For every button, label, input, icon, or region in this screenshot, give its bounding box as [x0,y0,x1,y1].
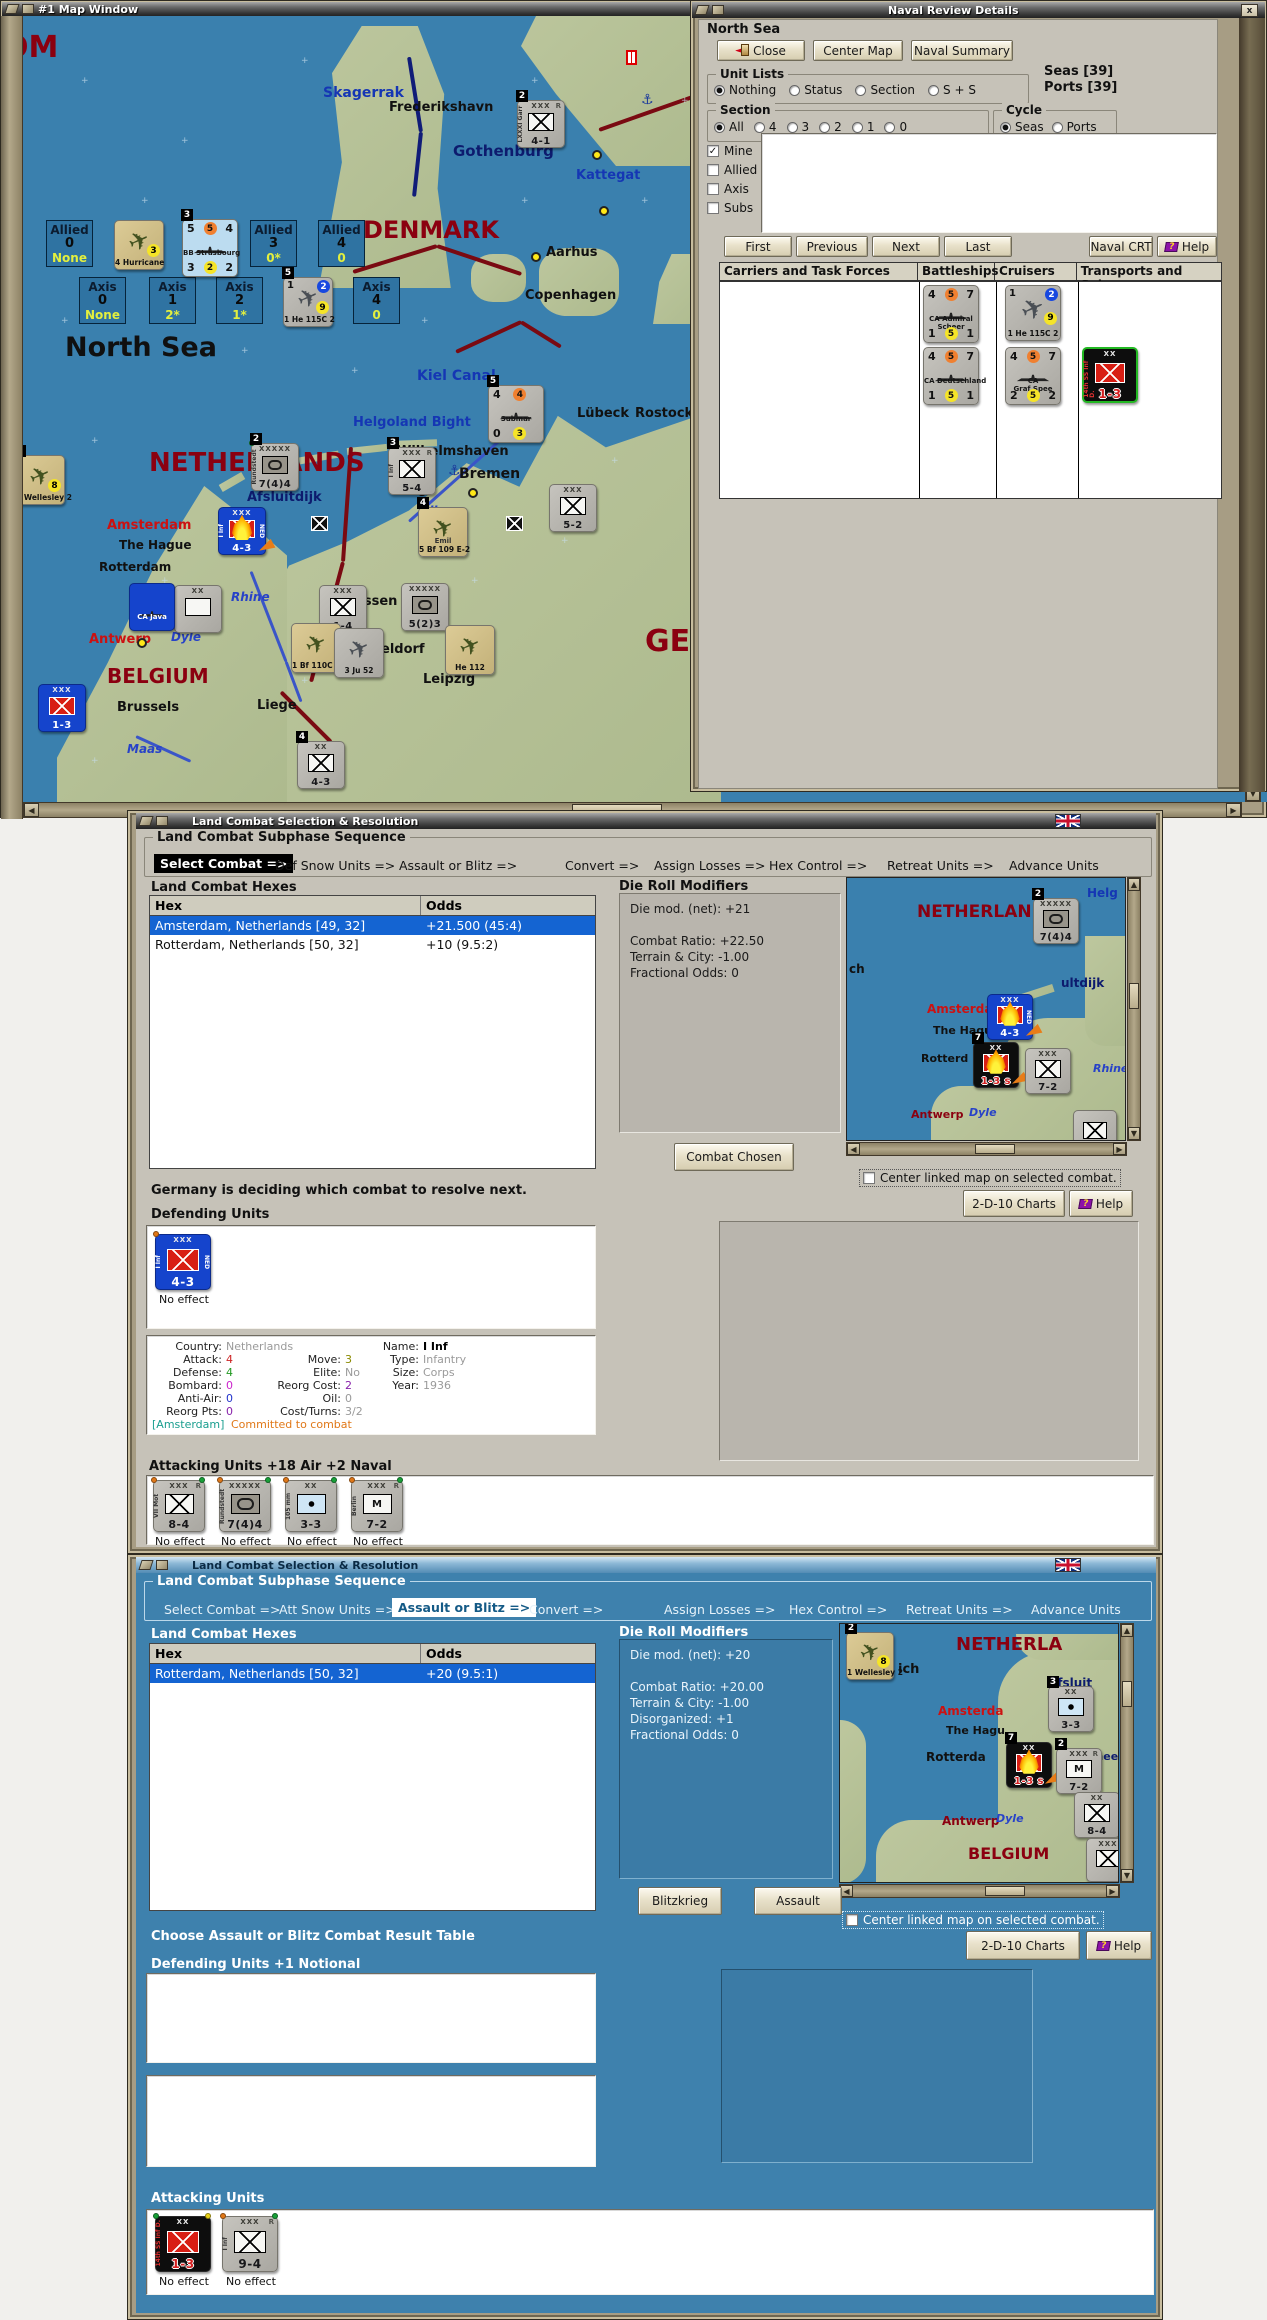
center-map-button[interactable]: Center Map [813,40,903,61]
previous-button[interactable]: Previous [796,236,868,257]
unit-lists-option[interactable]: S + S [928,83,976,97]
unit-counter[interactable]: XXXNED4-3 [987,994,1033,1040]
checkbox-label: Axis [724,182,749,196]
naval-crt-button[interactable]: Naval CRT [1089,236,1153,257]
map-label: Amsterda [938,1704,1003,1718]
air-unit-counter[interactable]: ✈Emil5 Bf 109 E-24 [418,507,468,557]
checkbox-label: Center linked map on selected combat. [880,1171,1117,1185]
unit-counter[interactable]: XX105 mm3-3 [285,1480,337,1532]
hex-cell: Rotterdam, Netherlands [50, 32] [150,1664,421,1683]
window-pin-icon[interactable] [22,4,34,14]
map-left-bezel [1,16,23,819]
linked-minimap[interactable]: HelgNETHERLANDSultdijkAmsterdaThe HaguRo… [846,877,1126,1141]
close-window-icon[interactable]: x [1241,4,1258,17]
naval-rating: 7 [1048,350,1056,363]
stack-number: 2 [235,294,244,308]
map-label: BELGIUM [107,664,209,688]
map-label: Antwerp [942,1814,999,1828]
map-label: Rotterdam [99,560,171,574]
unit-counter[interactable]: XX [174,585,222,633]
naval-rating: 5 [187,222,195,235]
column-header: Transports and Subs [1077,263,1221,280]
checkbox-icon[interactable] [707,202,719,214]
map-label: Liege [257,698,297,713]
naval-rating: 1 [928,389,936,402]
naval-rating-circle: 5 [945,389,958,402]
checkbox-icon[interactable] [846,1914,858,1926]
sea-sparkle: + [561,536,569,546]
blitzkrieg-button[interactable]: Blitzkrieg [638,1887,722,1915]
stack-count-badge: 5 [487,375,499,387]
help-button[interactable]: ? Help [1069,1190,1133,1217]
stack-info-box[interactable]: Axis0None [79,277,126,324]
detail-value: Corps [423,1366,455,1379]
detail-label: Elite: [267,1366,341,1379]
land-area [1085,936,1126,1046]
unit-size-label: XXX [320,587,366,595]
phase-step-3: Assault or Blitz => [392,1598,536,1617]
stack-count-badge: 4 [417,497,429,509]
radio-icon[interactable] [787,122,798,133]
detail-label: Move: [267,1353,341,1366]
detail-label: Cost/Turns: [267,1405,341,1418]
result-panel [719,1221,1139,1461]
scroll-thumb[interactable] [975,1144,1015,1154]
hex-cell: +21.500 (45:4) [421,916,589,935]
cycle-option[interactable]: Ports [1052,120,1097,134]
map-label: ch [849,962,865,976]
air-unit-counter[interactable]: ✈81 Wellesley 22 [846,1632,894,1680]
air-unit-counter[interactable]: 12✈91 He 115C 2 [1005,285,1061,341]
defending-units-box-2[interactable] [146,2075,596,2167]
radio-icon[interactable] [884,122,895,133]
unit-symbol-inf [330,598,357,616]
stack-number: 4 [337,237,346,251]
phase-step-7: Retreat Units => [887,858,994,873]
section-label: Section [716,103,775,117]
stack-info-box[interactable]: Allied30* [250,220,297,267]
unit-counter[interactable]: XXXRVII Mot8-4 [153,1480,205,1532]
unit-strength: 7(4)4 [252,479,298,490]
help-book-icon: ? [1164,242,1179,252]
unit-strength: 4-1 [518,136,564,147]
column-header: Odds [421,1644,589,1663]
modifier-line: Disorganized: +1 [630,1712,734,1726]
stack-value: 2* [165,308,180,322]
linked-minimap[interactable]: NETHERLAichAfsluitAmsterdaThe HaguRotter… [839,1623,1119,1883]
unit-counter[interactable]: XX14th SS Inf D.1-3 [155,2216,211,2272]
radio-label: 3 [802,120,810,134]
center-map-checkbox-row[interactable]: Center linked map on selected combat. [842,1911,1104,1929]
center-map-checkbox-row[interactable]: Center linked map on selected combat. [859,1169,1121,1187]
radio-icon[interactable] [852,122,863,133]
last-button[interactable]: Last [944,236,1012,257]
help-book-icon: ? [1096,1941,1111,1951]
map-label: DENMARK [363,216,499,244]
map-label: Antwerp [911,1108,964,1121]
result-panel [721,1969,1033,2163]
help-button[interactable]: ? Help [1086,1931,1152,1960]
window-menu-icon[interactable] [4,4,19,14]
sea-sparkle: + [81,76,89,86]
map-label: Rhine [1093,1062,1126,1075]
unit-strength: 3-3 [1049,1720,1093,1731]
hexes-label: Land Combat Hexes [151,880,297,895]
unit-counter[interactable]: XXXRI Inf5-43 [388,447,436,495]
section-option[interactable]: 4 [754,120,777,134]
air-unit-counter[interactable]: ✈3 Ju 52 [334,628,384,678]
stack-info-box[interactable]: Axis40 [353,277,400,324]
phase-sequence: Select Combat =>Att Snow Units =>Assault… [144,1581,1152,1621]
unit-symbol-hq [412,596,439,614]
unit-symbol-m: M [363,1494,392,1514]
checkbox-icon[interactable]: ✓ [707,145,719,157]
radio-label: 0 [899,120,907,134]
assault-button[interactable]: Assault [754,1887,842,1915]
modifier-line: Die mod. (net): +21 [630,902,750,916]
unit-size-label: XXXXX [220,1482,270,1490]
phase-step-5: Assign Losses => [654,858,765,873]
unit-counter[interactable]: XXXXX5(2)3 [401,583,449,631]
unit-counter[interactable]: XXXI InfNED4-3 [218,507,266,555]
phase-step-3: Assault or Blitz => [399,858,517,873]
defending-units-box[interactable]: XXXI InfNED4-3No effect [146,1225,596,1329]
unit-symbol-inf [1095,363,1125,384]
radio-label: 4 [769,120,777,134]
scroll-right-arrow[interactable]: ▶ [1113,1143,1126,1155]
sea-sparkle: + [61,316,69,326]
combat-hexes-table[interactable]: HexOddsAmsterdam, Netherlands [49, 32]+2… [149,895,596,1169]
stack-info-box[interactable]: Allied0None [46,220,93,267]
hex-cell: +10 (9.5:2) [421,935,589,954]
status-dot [265,1477,271,1483]
hex-combat-row[interactable]: Rotterdam, Netherlands [50, 32]+20 (9.5:… [150,1664,595,1683]
status-dot [220,2213,226,2219]
minimap-vertical-scrollbar[interactable]: ▲ ▼ [1120,1623,1134,1883]
reserve-flag: R [1093,1750,1098,1758]
radio-label: Section [870,83,915,97]
unit-size-label: XX [298,743,344,751]
unit-counter[interactable]: XXXXXRundstedt7(4)42 [251,443,299,491]
next-button[interactable]: Next [872,236,940,257]
map-label: Frederikshavn [389,100,493,115]
combat2-titlebar[interactable]: Land Combat Selection & Resolution [136,1557,1156,1573]
column-divider [919,282,920,498]
naval-list-box[interactable] [761,133,1217,233]
uk-flag-icon [1055,1558,1081,1572]
first-button[interactable]: First [724,236,792,257]
cycle-options: SeasPorts [1000,120,1097,134]
unit-effect-label: No effect [149,1293,219,1306]
detail-label: Attack: [152,1353,222,1366]
unit-counter[interactable]: XX1-3 s7 [1006,1742,1052,1788]
air-rating-badge: 9 [1044,312,1057,325]
attacking-units-box[interactable]: XX14th SS Inf D.1-3No effectXXXRI Inf9-4… [146,2209,1154,2295]
unit-size-label: XXX [156,1236,210,1244]
stack-number: 1 [168,294,177,308]
naval-unit-counter[interactable]: 457CAGraf Spee252 [1005,347,1061,405]
detail-value: Netherlands [226,1340,293,1353]
defending-units-label: Defending Units +1 Notional [151,1957,360,1972]
map-label: Aarhus [546,245,598,260]
hex-combat-row[interactable]: Rotterdam, Netherlands [50, 32]+10 (9.5:… [150,935,595,954]
scroll-thumb[interactable] [985,1886,1025,1896]
naval-window-titlebar[interactable]: Naval Review Details [692,2,1265,18]
choose-crt-label: Choose Assault or Blitz Combat Result Ta… [151,1929,475,1944]
filter-option[interactable]: Allied [707,163,757,177]
map-label: The Hague [119,538,191,552]
radio-icon[interactable] [819,122,830,133]
status-dot [331,1477,337,1483]
unit-effect-label: No effect [345,1535,411,1548]
radio-icon[interactable] [928,85,939,96]
map-label: Lübeck [577,406,629,421]
unit-strength: 1-3 [1084,387,1136,401]
naval-unit-counter[interactable]: CA Java [129,583,175,631]
stack-info-box[interactable]: Axis12* [149,277,196,324]
section-option[interactable]: 2 [819,120,842,134]
reserve-flag: R [394,1482,399,1490]
naval-rating: 7 [966,288,974,301]
naval-unit-counter[interactable]: 44Submar035 [488,385,544,443]
scroll-up-arrow[interactable]: ▲ [1128,878,1140,891]
radio-label: 2 [834,120,842,134]
naval-rating: 4 [493,388,501,401]
combat1-titlebar[interactable]: Land Combat Selection & Resolution [136,813,1156,829]
scroll-right-arrow[interactable]: ▶ [1106,1885,1119,1897]
naval-rating: 2 [225,261,233,274]
unit-counter[interactable]: XX1-3 s7 [973,1042,1019,1088]
reserve-flag: R [196,1482,201,1490]
checkbox-icon[interactable] [707,164,719,176]
section-option[interactable]: 0 [884,120,907,134]
radio-icon[interactable] [855,85,866,96]
air-unit-counter[interactable]: 12✈91 He 115C 25 [283,277,333,327]
air-unit-label: He 112 [446,663,494,672]
checkbox-label: Allied [724,163,757,177]
unit-strength: 8-4 [1075,1826,1119,1837]
naval-help-button[interactable]: ? Help [1157,236,1217,257]
unit-size-label: XXX [39,686,85,694]
stack-info-box[interactable]: Allied40 [318,220,365,267]
map-label: Afsluitdijk [247,490,322,505]
cycle-option[interactable]: Seas [1000,120,1044,134]
air-unit-counter[interactable]: ✈34 Hurricane [114,220,164,270]
detail-value: 0 [226,1405,233,1418]
unit-symbol-inf [1083,1122,1107,1139]
sea-sparkle: + [351,366,359,376]
uk-flag-icon [1055,814,1081,828]
stack-value: 0* [266,251,281,265]
charts-button[interactable]: 2-D-10 Charts [966,1931,1080,1960]
attacking-units-box[interactable]: XXXRVII Mot8-4No effectXXXXXRundstedt7(4… [146,1475,1154,1545]
modifier-line: Combat Ratio: +22.50 [630,934,764,948]
detail-value: 0 [226,1379,233,1392]
naval-unit-counter[interactable]: 457CA Deutschland151 [923,347,979,405]
radio-icon[interactable] [789,85,800,96]
naval-rating-circle: 4 [513,388,526,401]
stack-info-box[interactable]: Axis21* [216,277,263,324]
naval-ratings-bottom: 252 [1010,389,1056,402]
detail-label: Name: [373,1340,419,1353]
scroll-thumb[interactable] [1122,1681,1132,1707]
minimap-horizontal-scrollbar[interactable]: ◀ ▶ [846,1142,1127,1156]
side-filters: ✓MineAlliedAxisSubs [707,144,757,215]
unit-counter[interactable]: XX14th SS Inf D.1-3 [1082,347,1138,403]
sea-sparkle: + [301,676,309,686]
filter-option[interactable]: ✓Mine [707,144,757,158]
unit-counter[interactable]: XXX5-2 [549,484,597,532]
door-exit-icon: ◄ [736,44,749,57]
combat-hexes-table[interactable]: HexOddsRotterdam, Netherlands [50, 32]+2… [149,1643,596,1911]
air-unit-label: 5 Bf 109 E-2 [419,545,467,554]
window-menu-icon[interactable] [138,816,153,826]
radio-icon[interactable] [714,85,725,96]
naval-unit-counter[interactable]: 457CA AdmiralScheer151 [923,285,979,343]
unit-size-label: XX [156,2218,210,2226]
map-label: ultdijk [1061,976,1104,990]
checkbox-icon[interactable] [863,1172,875,1184]
unit-counter[interactable]: XXXRM7-22 [1056,1748,1102,1794]
naval-table-body[interactable]: 457CA AdmiralScheer151457CA Deutschland1… [719,281,1222,499]
radio-icon[interactable] [714,122,725,133]
detail-value: No [345,1366,360,1379]
port-marker[interactable] [531,252,541,262]
scroll-down-arrow[interactable]: ▼ [1121,1869,1133,1882]
unit-strength: 9-4 [223,2257,277,2271]
unit-size-label: XX [175,587,221,595]
modifier-line: Fractional Odds: 0 [630,966,739,980]
scroll-thumb[interactable] [1129,983,1139,1009]
section-option[interactable]: 3 [787,120,810,134]
port-marker[interactable] [468,488,478,498]
section-option[interactable]: 1 [852,120,875,134]
unit-counter[interactable]: XXX1-3 [38,684,86,732]
land-combat-window-2: Land Combat Selection & Resolution Land … [127,1554,1163,2320]
unit-counter[interactable]: XXX7-2 [1025,1048,1071,1094]
unit-lists-option[interactable]: Section [855,83,915,97]
unit-counter[interactable]: XXXRI Inf9-4 [222,2216,278,2272]
modifier-line: Combat Ratio: +20.00 [630,1680,764,1694]
column-header: Odds [421,896,589,915]
unit-counter[interactable]: XX8-4 [1074,1792,1119,1838]
stack-number: 0 [98,294,107,308]
minimap-horizontal-scrollbar[interactable]: ◀ ▶ [839,1884,1120,1898]
naval-rating-circle: 5 [204,222,217,235]
sea-sparkle: + [681,96,689,106]
unit-counter[interactable]: XX3-33 [1048,1686,1094,1732]
sea-name: North Sea [707,22,780,37]
port-marker[interactable] [137,638,147,648]
air-rating-badge: 8 [48,479,61,492]
radio-label: All [729,120,744,134]
scroll-left-arrow[interactable]: ◀ [847,1143,860,1155]
phase-step-8: Advance Units [1009,858,1099,873]
naval-summary-button[interactable]: Naval Summary [911,40,1013,61]
stack-count-badge: 2 [845,1623,857,1634]
section-option[interactable]: All [714,120,744,134]
stack-value: 0 [372,308,380,322]
scroll-left-arrow[interactable]: ◀ [24,803,39,817]
unit-lists-option[interactable]: Status [789,83,842,97]
unit-counter[interactable]: XXXI InfNED4-3 [155,1234,211,1290]
detail-value: 3 [345,1353,352,1366]
scroll-right-arrow[interactable]: ▶ [1226,803,1241,817]
status-dot [199,1477,205,1483]
radio-label: Ports [1067,120,1097,134]
window-menu-icon[interactable] [138,1560,153,1570]
unit-counter[interactable]: XXX [1086,1838,1119,1882]
checkbox-icon[interactable] [707,183,719,195]
combat2-content: Land Combat Subphase Sequence Select Com… [136,1573,1156,2313]
charts-button[interactable]: 2-D-10 Charts [963,1190,1065,1217]
map-label: BELGIUM [968,1844,1049,1863]
unit-counter[interactable]: XXXXX7(4)42 [1033,898,1079,944]
unit-strength: 5-4 [389,483,435,494]
unit-counter[interactable]: XX4-34 [297,741,345,789]
unit-lists-option[interactable]: Nothing [714,83,776,97]
map-label: Rostock [635,406,693,421]
defending-units-box[interactable] [146,1973,596,2063]
stack-side: Axis [88,280,116,294]
map-label: Amsterdam [107,518,191,533]
minimap-vertical-scrollbar[interactable]: ▲ ▼ [1127,877,1141,1141]
filter-option[interactable]: Subs [707,201,757,215]
scroll-up-arrow[interactable]: ▲ [1121,1624,1133,1637]
port-marker[interactable] [592,150,602,160]
map-label: Copenhagen [525,288,616,303]
air-unit-label: 1 He 115C 2 [284,315,332,324]
window-menu-icon[interactable] [694,5,709,15]
window-pin-icon[interactable] [712,5,724,15]
naval-unit-counter[interactable]: 554BB Strasbourg3223 [182,219,238,277]
unit-counter[interactable]: XXXRLXXXI Garr4-12 [517,100,565,148]
unit-counter[interactable]: XXXRBerlinM7-2 [351,1480,403,1532]
phase-step-8: Advance Units [1031,1602,1121,1617]
detail-label: Defense: [152,1366,222,1379]
phase-step-1: Select Combat => [164,1602,281,1617]
radio-icon[interactable] [1052,122,1063,133]
stack-count-badge: 3 [387,437,399,449]
stack-count-badge: 2 [516,90,528,102]
stack-value: None [85,308,120,322]
unit-symbol-hq [231,1494,260,1514]
filter-option[interactable]: Axis [707,182,757,196]
naval-rating: 1 [966,389,974,402]
status-dot [151,1477,157,1483]
window-pin-icon[interactable] [156,816,168,826]
radio-icon[interactable] [754,122,765,133]
window-pin-icon[interactable] [156,1560,168,1570]
sea-sparkle: + [301,56,309,66]
unit-counter[interactable] [1073,1110,1117,1141]
air-unit-counter[interactable]: ✈He 112 [445,625,495,675]
scroll-down-arrow[interactable]: ▼ [1128,1127,1140,1140]
close-button[interactable]: ◄ Close [717,40,805,61]
status-dot [272,2213,278,2219]
detail-label: Anti-Air: [152,1392,222,1405]
unit-counter[interactable]: XXXXXRundstedt7(4)4 [219,1480,271,1532]
port-marker[interactable] [599,206,609,216]
map-label: Dyle [996,1812,1024,1825]
hex-combat-row[interactable]: Amsterdam, Netherlands [49, 32]+21.500 (… [150,916,595,935]
radio-icon[interactable] [1000,122,1011,133]
unit-symbol-inf [1084,1804,1110,1822]
map-label: Rhine [231,590,270,604]
combat-chosen-button[interactable]: Combat Chosen [674,1143,794,1171]
unit-size-label: XXX [1087,1840,1119,1848]
naval-ratings-bottom: 322 [187,261,233,274]
